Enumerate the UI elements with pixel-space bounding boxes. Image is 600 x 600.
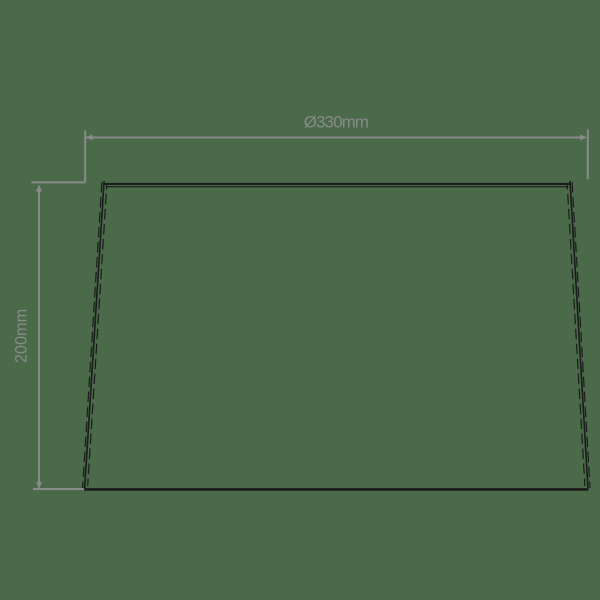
svg-text:Ø330mm: Ø330mm <box>304 113 368 132</box>
svg-text:200mm: 200mm <box>13 309 31 363</box>
